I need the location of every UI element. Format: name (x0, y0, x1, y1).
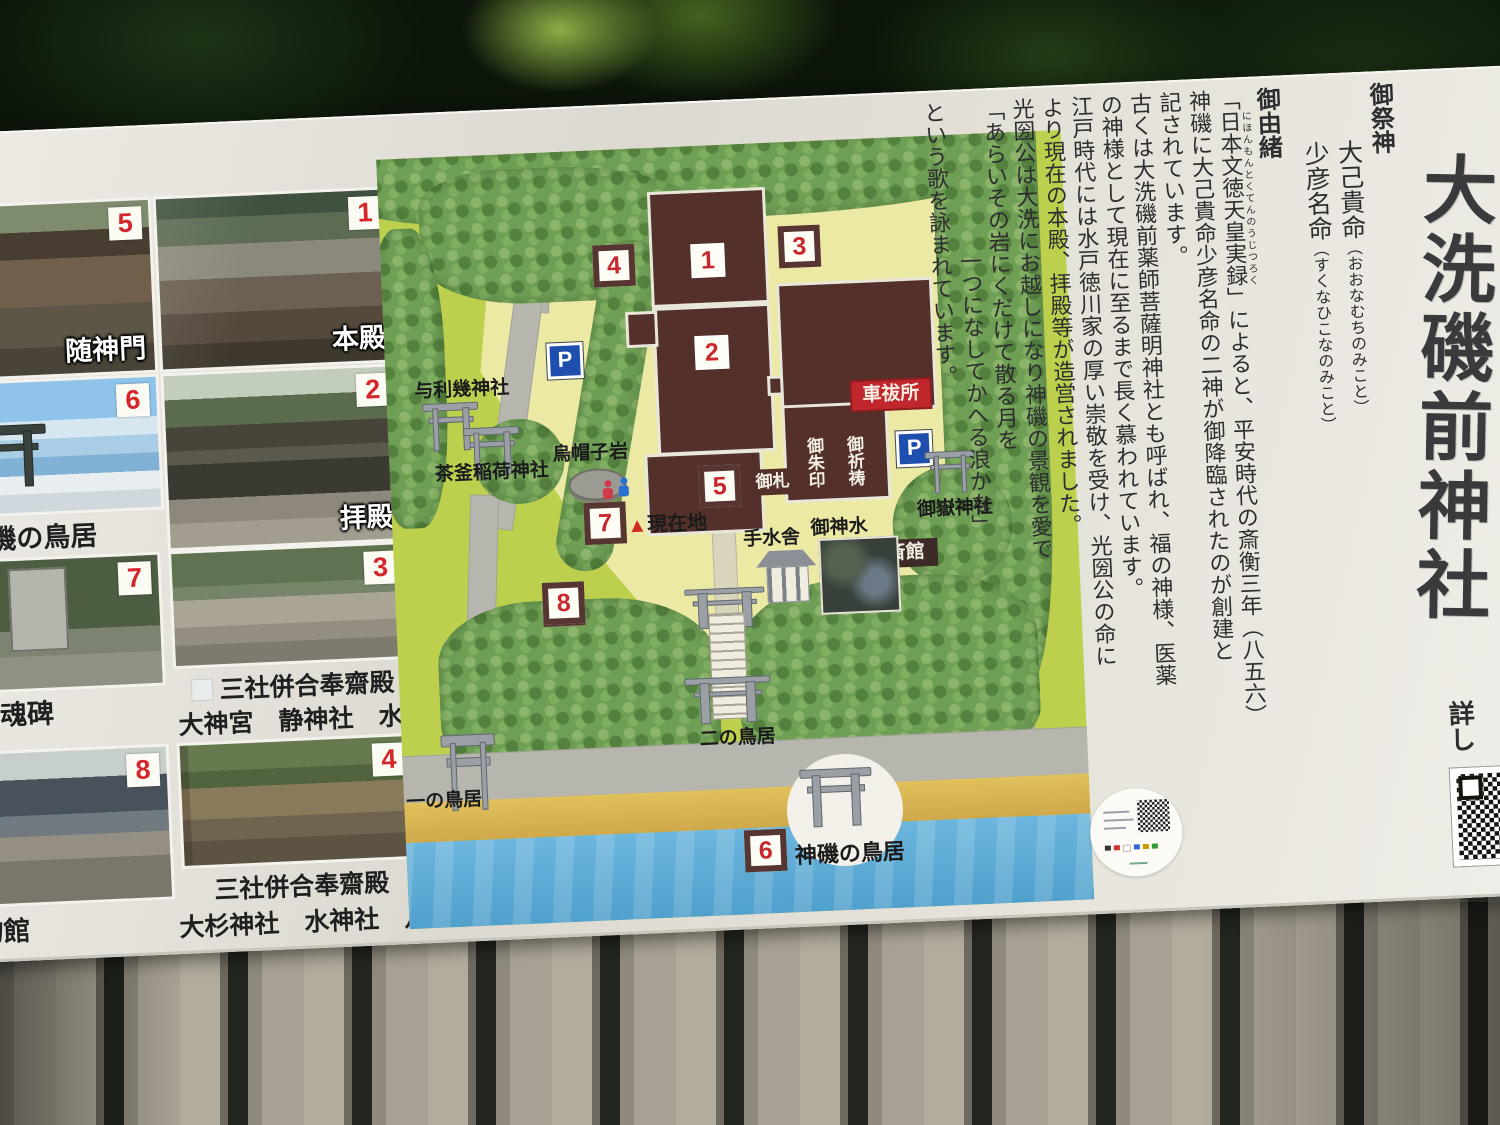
temizusha-icon (766, 565, 810, 603)
photo-number-badge: 7 (117, 561, 151, 595)
description-panel: 大洗磯前神社 御祭神 大己貴命（おおなむちのみこと） 少彦名命（すくなひこなのみ… (972, 71, 1500, 913)
photo-caption: 博物館 (0, 909, 31, 951)
photo-caption: 随神門 (64, 326, 147, 368)
ichi-no-torii-label: 一の鳥居 (406, 784, 483, 814)
photo-caption: 本殿 (331, 316, 387, 357)
goshinsui-label: 御神水 (810, 511, 868, 540)
photo-sansha-2: 4 (180, 736, 417, 866)
photo-number-badge: 8 (126, 753, 160, 787)
restroom-male-icon (618, 477, 629, 496)
shrine-information-signboard: 5 随神門 1 本殿 6 神磯の鳥居 2 拝殿 7 (0, 66, 1500, 965)
map-marker-1: 1 (692, 245, 723, 276)
photo-number-badge: 6 (116, 383, 150, 417)
description-text: 御祭神 大己貴命（おおなむちのみこと） 少彦名命（すくなひこなのみこと） 御由緒… (918, 81, 1429, 909)
chagama-inari-label: 茶釜稲荷神社 (434, 455, 549, 487)
ofuda-label: 御札 (748, 468, 797, 496)
kamiiso-torii-icon (803, 767, 869, 828)
map-marker-6: 6 (744, 829, 788, 873)
sticker-text-line (1103, 811, 1129, 814)
photo-caption: 拝殿 (339, 494, 395, 535)
sticker-logo (1130, 862, 1148, 865)
goshinsui-photo (818, 535, 901, 614)
photo-caption: 神磯の鳥居 (0, 513, 98, 558)
eboshi-rock-label: 烏帽子岩 (552, 436, 629, 466)
goshuin-label: 御朱印 (800, 427, 828, 498)
building-kitosho (784, 404, 888, 500)
parking-sign: P (546, 342, 584, 380)
map-marker-4: 4 (592, 244, 636, 288)
map-marker-5: 5 (698, 464, 742, 508)
map-marker-3: 3 (777, 225, 821, 269)
photo-haiden: 2 拝殿 (163, 366, 402, 548)
stone-monument (8, 566, 70, 652)
sticker-text-line (1104, 818, 1134, 821)
photo-chukonhi: 7 (0, 555, 163, 692)
photo-caption: 河忠魂碑 (0, 691, 55, 735)
photo-of-shrine-signboard: 5 随神門 1 本殿 6 神磯の鳥居 2 拝殿 7 (0, 0, 1500, 1125)
photo-zuishinmon: 5 随神門 (0, 200, 155, 379)
map-marker-8: 8 (542, 581, 586, 625)
photo-museum: 8 (0, 747, 172, 906)
details-qr-code (1450, 764, 1500, 866)
torii-silhouette-icon (0, 424, 44, 489)
building-haiden (655, 306, 773, 453)
language-flags (1105, 843, 1169, 852)
legend-square (191, 678, 214, 701)
current-location: ▲現在地 (627, 506, 708, 538)
ni-no-torii-label: 二の鳥居 (699, 721, 776, 751)
kurumaharai-label: 車祓所 (851, 379, 930, 410)
kamiiso-label: 神磯の鳥居 (794, 833, 905, 870)
yorigi-shrine-label: 与利幾神社 (414, 372, 510, 403)
sticker-qr-code (1137, 799, 1170, 832)
temizusha-label: 手水舎 (742, 522, 800, 551)
map-marker-7: 7 (583, 501, 627, 545)
torii-icon (689, 675, 767, 724)
sticker-text-line (1104, 827, 1126, 830)
gokito-label: 御祈祷 (840, 425, 868, 496)
details-label: 詳し (1441, 699, 1480, 753)
restroom-female-icon (602, 480, 613, 499)
photo-number-badge: 5 (108, 206, 142, 240)
building-small (628, 314, 655, 345)
photo-honden: 1 本殿 (156, 189, 395, 369)
map-marker-2: 2 (696, 337, 727, 368)
photo-kamiiso-torii: 6 (0, 377, 161, 516)
current-location-triangle: ▲ (627, 514, 648, 537)
photo-sansha-1: 3 (171, 544, 408, 666)
